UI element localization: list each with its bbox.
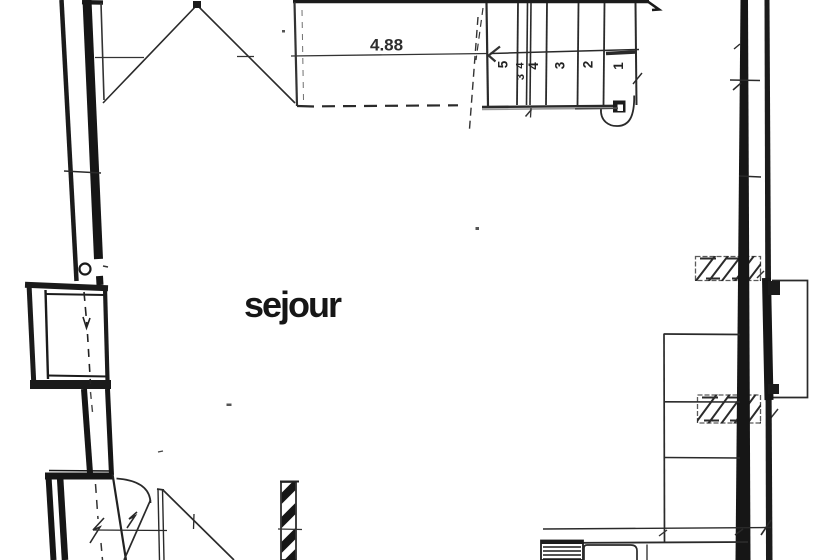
- svg-text:1: 1: [611, 62, 626, 70]
- svg-text:2: 2: [581, 61, 596, 69]
- svg-text:sejour: sejour: [244, 284, 342, 325]
- svg-text:4: 4: [515, 62, 527, 69]
- svg-text:5: 5: [496, 60, 511, 68]
- svg-text:4: 4: [526, 62, 541, 70]
- svg-text:4.88: 4.88: [370, 36, 403, 55]
- svg-text:3: 3: [553, 61, 568, 69]
- svg-text:3: 3: [515, 74, 527, 80]
